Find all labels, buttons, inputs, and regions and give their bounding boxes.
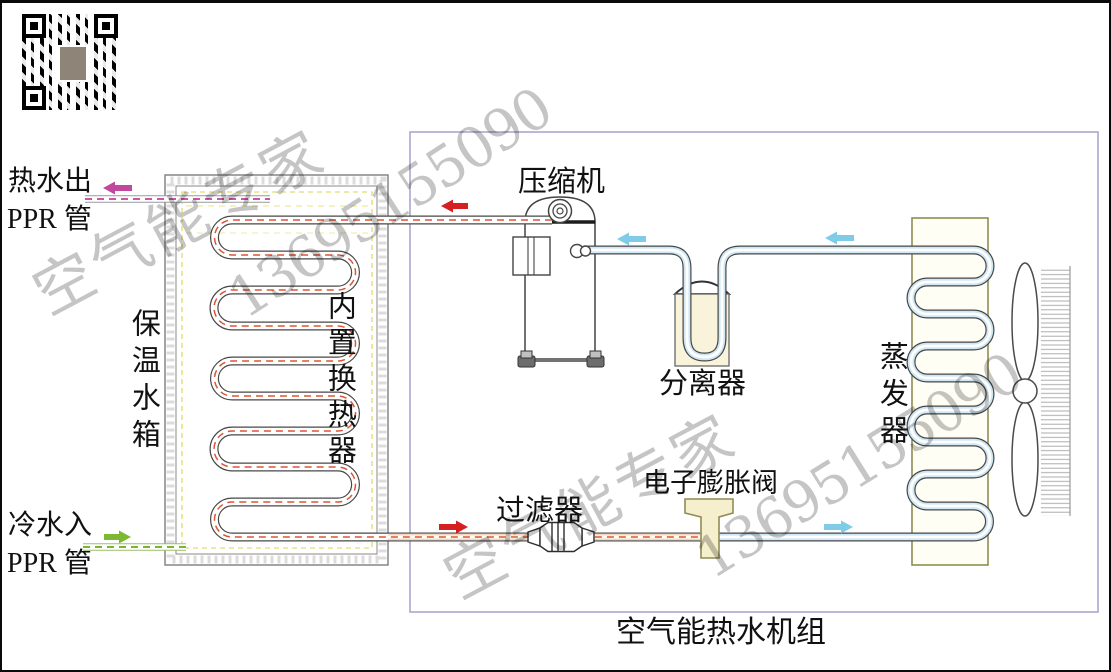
unit-caption: 空气能热水机组: [616, 616, 826, 651]
air-fins: [1040, 268, 1070, 516]
suction-flow-arrow-right: [825, 232, 854, 245]
cold-water-pipe-label: PPR 管: [7, 548, 92, 580]
evaporator-housing: [912, 218, 988, 565]
compressor-label: 压缩机: [518, 166, 605, 199]
hot-water-pipe-label: PPR 管: [7, 204, 92, 236]
compressor-scroll-icon: [549, 200, 572, 223]
filter-label: 过滤器: [496, 495, 583, 528]
wechat-qr-code: [22, 14, 118, 110]
schematic-canvas: [0, 0, 1111, 672]
fan-blade-bottom: [1012, 402, 1038, 516]
evaporator-label: 蒸发器: [874, 341, 907, 452]
discharge-flow-arrow: [441, 200, 468, 213]
qr-finder-icon: [22, 86, 46, 110]
expansion-valve-label: 电子膨胀阀: [643, 468, 778, 499]
expansion-valve-body: [685, 499, 733, 558]
evaporator-fan: [1012, 263, 1070, 516]
qr-contact-photo: [58, 45, 88, 82]
qr-finder-icon: [94, 14, 118, 38]
fan-blade-top: [1012, 263, 1038, 381]
heat-pump-schematic: 空气能专家 13695155090 空气能专家 13695155090 热水出 …: [0, 0, 1111, 672]
cold-water-in-arrow: [104, 531, 131, 544]
compressor-suction-fitting: [571, 245, 591, 258]
tank-label: 保温水箱: [126, 308, 159, 456]
hot-water-out-label: 热水出: [8, 166, 92, 198]
inner-coil-label: 内置换热器: [322, 291, 355, 471]
fan-hub: [1013, 379, 1037, 403]
suction-flow-arrow-left: [617, 233, 646, 246]
hot-water-out-arrow: [103, 182, 132, 195]
cold-water-in-label: 冷水入: [8, 510, 92, 542]
liquid-flow-arrow: [439, 521, 468, 534]
suction-pipe: [587, 250, 912, 357]
qr-finder-icon: [22, 14, 46, 38]
separator-label: 分离器: [659, 368, 746, 401]
cold-liquid-flow-arrow: [824, 521, 853, 534]
compressor-terminal-box: [513, 237, 550, 275]
